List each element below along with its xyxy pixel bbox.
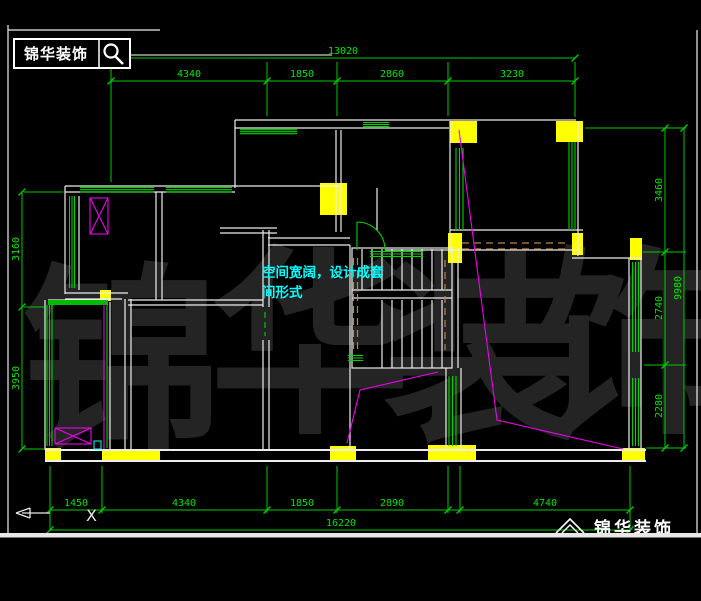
roof-icon: [556, 519, 584, 533]
dim-top-3: 2860: [380, 69, 404, 80]
watermark-char: 饰: [538, 228, 701, 463]
annotation-line1: 空间宽阔，设计成套: [262, 264, 384, 281]
dim-bottom-4: 2890: [380, 498, 404, 509]
dim-left-1: 3160: [11, 237, 22, 261]
dim-right-total: 9980: [673, 276, 684, 300]
dim-left-2: 3950: [11, 366, 22, 390]
balcony-window-bar: [48, 300, 108, 305]
dim-bottom-2: 4340: [172, 498, 196, 509]
dim-bottom-3: 1850: [290, 498, 314, 509]
axis-x-label: X: [86, 506, 97, 525]
dim-bottom-total: 16220: [326, 518, 356, 529]
dim-bottom-1: 1450: [64, 498, 88, 509]
watermark-char: 华: [210, 228, 410, 463]
annotation-line2: 间形式: [262, 284, 303, 301]
dim-top-total: 13020: [328, 46, 358, 57]
dim-top-1: 4340: [177, 69, 201, 80]
cad-floorplan-view: 锦 华 装 饰: [0, 0, 701, 601]
dim-bottom-5: 4740: [533, 498, 557, 509]
floorplan-canvas: 锦 华 装 饰: [0, 0, 701, 601]
header-logo: 锦华装饰: [14, 39, 332, 68]
dim-top-2: 1850: [290, 69, 314, 80]
dim-top-4: 3230: [500, 69, 524, 80]
dim-right-1: 3460: [654, 178, 665, 202]
dimensions-top: 13020 4340 1850 2860 3230: [108, 46, 579, 182]
logo-text: 锦华装饰: [24, 45, 88, 63]
dim-right-3: 2280: [654, 394, 665, 418]
dim-right-2: 2740: [654, 296, 665, 320]
sheet-edge-strip: [0, 533, 701, 538]
